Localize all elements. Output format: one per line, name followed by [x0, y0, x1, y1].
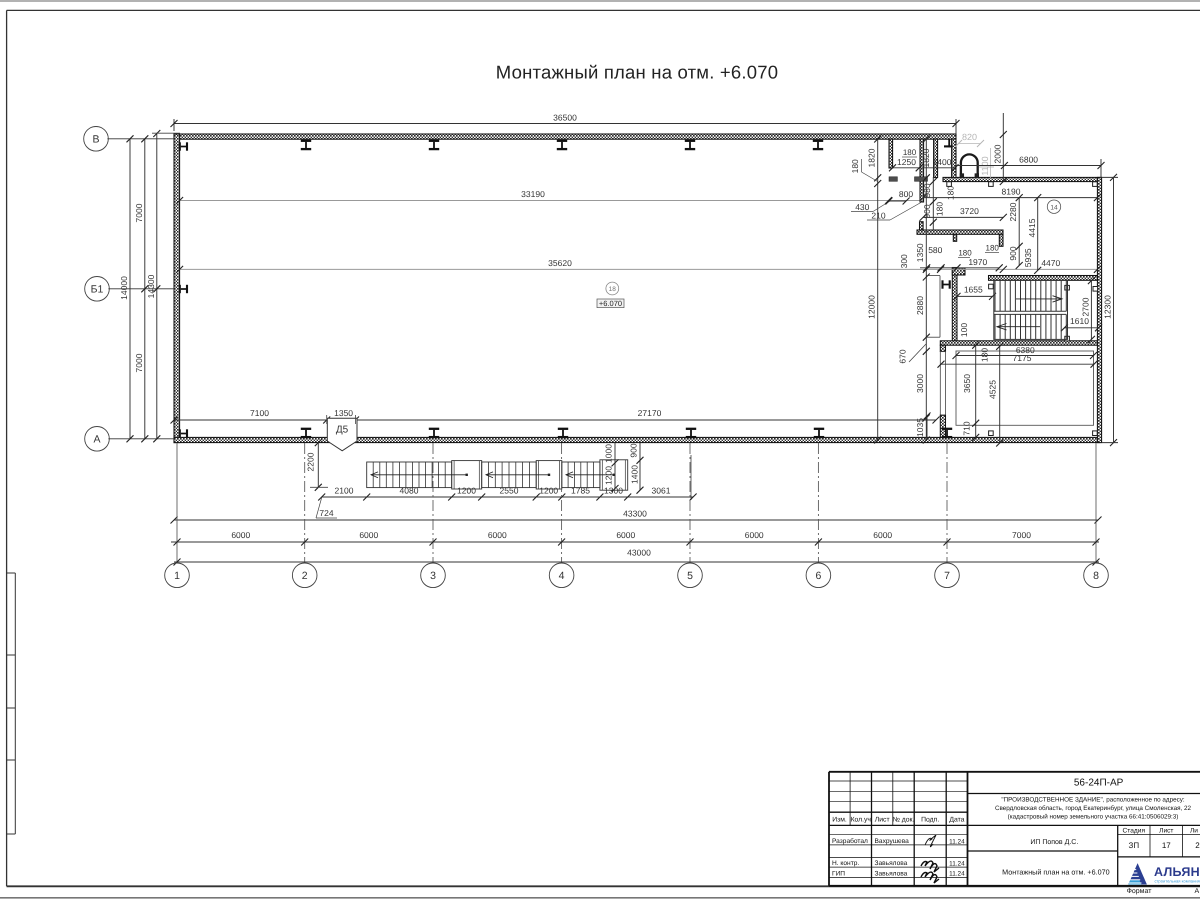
svg-text:820: 820	[962, 132, 977, 142]
svg-text:Н. контр.: Н. контр.	[832, 860, 859, 867]
svg-text:Подп.: Подп.	[921, 817, 939, 824]
svg-text:43300: 43300	[623, 508, 647, 518]
svg-text:1400: 1400	[933, 157, 952, 167]
svg-text:1200: 1200	[539, 485, 558, 495]
svg-text:1200: 1200	[457, 485, 476, 495]
svg-text:710: 710	[962, 421, 972, 435]
svg-text:АЛЬЯН: АЛЬЯН	[1154, 865, 1200, 879]
svg-text:1400: 1400	[630, 465, 640, 484]
svg-text:27170: 27170	[638, 408, 662, 418]
svg-text:6000: 6000	[359, 530, 378, 540]
svg-text:Лист: Лист	[875, 817, 890, 824]
svg-text:ЗП: ЗП	[1129, 841, 1140, 850]
svg-text:3650: 3650	[962, 374, 972, 393]
svg-text:180: 180	[903, 148, 917, 157]
svg-text:1100: 1100	[980, 156, 990, 175]
svg-text:7000: 7000	[1012, 530, 1031, 540]
svg-text:11.24: 11.24	[949, 838, 965, 845]
svg-text:6000: 6000	[745, 530, 764, 540]
svg-text:900: 900	[629, 443, 639, 457]
svg-text:11.24: 11.24	[949, 871, 965, 878]
svg-text:2200: 2200	[306, 452, 316, 471]
svg-text:1655: 1655	[964, 285, 983, 295]
svg-text:4415: 4415	[1027, 218, 1037, 237]
svg-text:5: 5	[687, 570, 693, 582]
svg-text:Стадия: Стадия	[1123, 827, 1146, 834]
svg-text:4080: 4080	[400, 485, 419, 495]
svg-text:56-24П-АР: 56-24П-АР	[1074, 777, 1124, 788]
svg-text:2: 2	[1195, 841, 1200, 850]
svg-text:900: 900	[1008, 246, 1018, 260]
svg-text:14300: 14300	[146, 274, 156, 298]
svg-text:12300: 12300	[1103, 295, 1113, 319]
svg-text:Разработал: Разработал	[832, 838, 868, 845]
svg-text:180: 180	[980, 348, 990, 362]
svg-text:ИП Попов Д.С.: ИП Попов Д.С.	[1030, 839, 1078, 846]
svg-text:ГИП: ГИП	[832, 871, 845, 878]
svg-text:33190: 33190	[521, 189, 545, 199]
svg-text:12000: 12000	[867, 295, 877, 319]
svg-text:7175: 7175	[1013, 353, 1032, 363]
svg-text:Д5: Д5	[336, 425, 349, 436]
svg-text:В: В	[92, 134, 99, 146]
svg-text:Лист: Лист	[1159, 827, 1173, 834]
svg-text:6000: 6000	[231, 530, 250, 540]
svg-text:4470: 4470	[1041, 258, 1060, 268]
svg-text:580: 580	[928, 245, 942, 255]
svg-text:Завьялова: Завьялова	[875, 860, 908, 867]
svg-text:6000: 6000	[616, 530, 635, 540]
svg-text:7000: 7000	[134, 203, 144, 222]
svg-text:1970: 1970	[968, 257, 987, 267]
svg-text:Формат: Формат	[1127, 888, 1153, 895]
svg-text:724: 724	[319, 508, 333, 518]
svg-text:7: 7	[944, 570, 950, 582]
svg-text:Монтажный план на отм. +6.070: Монтажный план на отм. +6.070	[1002, 868, 1109, 877]
svg-text:6000: 6000	[873, 530, 892, 540]
svg-text:3720: 3720	[960, 206, 979, 216]
svg-text:1: 1	[174, 570, 180, 582]
svg-text:7000: 7000	[134, 353, 144, 372]
svg-text:1250: 1250	[897, 157, 916, 167]
svg-text:2280: 2280	[1008, 202, 1018, 221]
svg-text:Свердловская область, город Ек: Свердловская область, город Екатеринбург…	[995, 805, 1192, 812]
svg-text:100: 100	[959, 323, 969, 337]
svg-text:800: 800	[899, 189, 913, 199]
svg-text:(кадастровый номер земельного: (кадастровый номер земельного участка 66…	[1008, 813, 1179, 820]
svg-text:1000: 1000	[604, 444, 614, 463]
svg-text:А: А	[1194, 888, 1199, 895]
svg-text:3061: 3061	[652, 485, 671, 495]
svg-text:8: 8	[1093, 570, 1099, 582]
svg-text:17: 17	[1162, 841, 1171, 850]
svg-text:"ПРОИЗВОДСТВЕННОЕ ЗДАНИЕ", рас: "ПРОИЗВОДСТВЕННОЕ ЗДАНИЕ", расположенное…	[1001, 797, 1185, 804]
svg-text:1610: 1610	[1070, 316, 1089, 326]
svg-text:14000: 14000	[119, 276, 129, 300]
svg-text:Кол.уч: Кол.уч	[851, 817, 872, 824]
svg-text:1350: 1350	[334, 408, 353, 418]
svg-text:1820: 1820	[867, 148, 877, 167]
svg-text:980: 980	[922, 183, 932, 197]
svg-text:8190: 8190	[1002, 186, 1021, 196]
svg-text:Дата: Дата	[949, 817, 964, 824]
svg-text:1200: 1200	[604, 466, 614, 485]
svg-text:4: 4	[559, 570, 565, 582]
svg-text:№ док.: № док.	[893, 817, 915, 824]
svg-text:670: 670	[897, 349, 907, 363]
svg-text:2550: 2550	[500, 485, 519, 495]
svg-text:Монтажный план на отм. +6.070: Монтажный план на отм. +6.070	[496, 61, 778, 82]
svg-text:Б1: Б1	[91, 284, 104, 296]
svg-text:180: 180	[986, 243, 1000, 252]
svg-text:3000: 3000	[915, 374, 925, 393]
svg-text:6: 6	[815, 570, 821, 582]
svg-text:18: 18	[609, 286, 617, 293]
svg-text:36500: 36500	[553, 113, 577, 123]
svg-text:Ли: Ли	[1190, 827, 1198, 834]
svg-text:строительная компания: строительная компания	[1155, 878, 1200, 883]
svg-text:11.24: 11.24	[949, 860, 965, 867]
svg-text:2100: 2100	[335, 485, 354, 495]
svg-text:2: 2	[302, 570, 308, 582]
svg-text:6000: 6000	[488, 530, 507, 540]
svg-text:7100: 7100	[250, 408, 269, 418]
svg-text:180: 180	[945, 186, 955, 200]
svg-text:14: 14	[1050, 204, 1058, 211]
svg-text:3: 3	[430, 570, 436, 582]
svg-text:+6.070: +6.070	[599, 299, 622, 308]
svg-text:6800: 6800	[1019, 154, 1038, 164]
svg-text:4525: 4525	[988, 380, 998, 399]
svg-text:180: 180	[958, 249, 972, 258]
svg-text:1350: 1350	[915, 243, 925, 262]
svg-text:43000: 43000	[627, 547, 651, 557]
svg-text:А: А	[93, 434, 100, 446]
svg-text:300: 300	[899, 254, 909, 268]
svg-text:Изм.: Изм.	[832, 817, 847, 824]
svg-text:Вахрушева: Вахрушева	[875, 838, 910, 845]
svg-text:2880: 2880	[915, 296, 925, 315]
svg-text:5935: 5935	[1023, 248, 1033, 267]
svg-text:180: 180	[935, 202, 945, 216]
svg-text:180: 180	[850, 159, 860, 173]
svg-text:430: 430	[855, 202, 869, 212]
svg-text:2700: 2700	[1081, 297, 1091, 316]
svg-text:35620: 35620	[548, 258, 572, 268]
svg-text:1035: 1035	[915, 418, 925, 437]
svg-text:Завьялова: Завьялова	[875, 871, 908, 878]
svg-text:210: 210	[871, 211, 885, 221]
svg-text:1785: 1785	[571, 485, 590, 495]
svg-text:2000: 2000	[992, 144, 1002, 163]
